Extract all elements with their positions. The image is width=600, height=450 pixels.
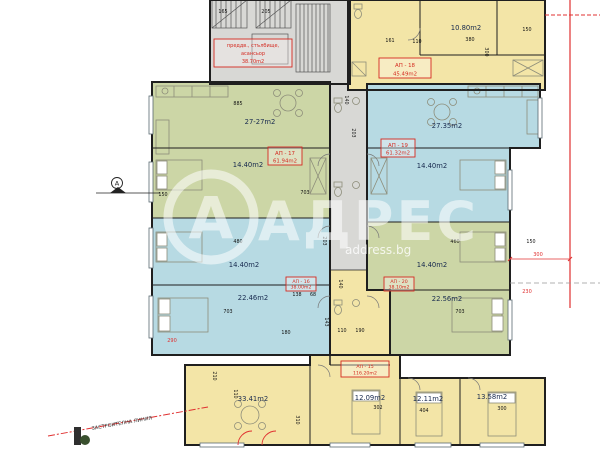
dim-label: 300 [483,47,489,56]
dim-label: 480 [233,239,242,245]
apartment-label: АП - 15116.20m2 [341,361,389,377]
red-dim-label: 300 [533,252,543,258]
apartment-label: АП - 1638.00m2 [286,277,316,291]
apartment-area: 116.20m2 [353,371,377,377]
core-label: преддв., стълбище, асансьор 38.70m2 [214,39,292,67]
dim-label: 380 [465,37,474,43]
apartment-area: 38.00m2 [291,285,312,291]
area-label: 12.09m2 [355,394,385,402]
dim-label: 140 [337,279,343,288]
dim-label: 110 [412,39,421,45]
area-label: 14.40m2 [417,261,447,269]
dim-label: 703 [300,190,309,196]
building-line-label: ЗАСТРОИТЕЛНА ЛИНИЯ [91,415,152,432]
area-label: 14.40m2 [233,161,263,169]
apartment-id: АП - 19 [388,143,409,149]
dim-label: 203 [321,236,327,245]
entrance-mark [74,427,81,445]
tree-mark [80,435,90,445]
apartment-area: 45.49m2 [393,72,417,78]
apartment-label: АП - 1961.32m2 [381,139,415,157]
dim-label: 190 [355,328,364,334]
core-label-line2: асансьор [241,51,265,57]
apartment-id: АП - 18 [395,63,416,69]
axis-letter: А [115,180,120,188]
apartment-label: АП - 1761.94m2 [268,147,302,165]
dim-label: 161 [385,38,394,44]
dim-label: 140 [343,95,349,104]
dim-label: 203 [350,128,356,137]
area-label: 14.40m2 [229,261,259,269]
apartment-id: АП - 16 [292,279,309,285]
apartment-id: АП - 17 [275,151,295,157]
dim-label: 150 [526,239,535,245]
area-label: 13.58m2 [477,393,507,401]
floor-plan-screenshot: ЗАСТРОИТЕЛНА ЛИНИЯ А преддв., стълбище, … [0,0,600,450]
dim-label: 210 [211,371,217,380]
dim-label: 110 [337,328,346,334]
apartment-id: АП - 15 [356,364,373,370]
red-dim-label: 290 [167,338,177,344]
core-label-line3: 38.70m2 [242,59,264,65]
area-label: 14.40m2 [417,162,447,170]
core-label-line1: преддв., стълбище, [227,43,280,49]
dim-label: 300 [497,406,506,412]
dim-label: 143 [323,317,329,326]
area-label: 10.80m2 [451,24,481,32]
apartment-id: АП - 20 [390,279,407,285]
dim-label: 138 [292,292,301,298]
dim-label: 150 [522,27,531,33]
dim-label: 885 [233,101,242,107]
apartment-area: 61.32m2 [386,151,410,157]
area-label: 12.11m2 [413,395,443,403]
area-label: 27-27m2 [245,118,276,126]
area-label: 27.35m2 [432,122,462,130]
dim-label: 460 [450,239,459,245]
dim-label: 180 [281,330,290,336]
floor-plan-svg: ЗАСТРОИТЕЛНА ЛИНИЯ А преддв., стълбище, … [0,0,600,450]
dim-label: 110 [232,389,238,398]
dim-label: 703 [223,309,232,315]
dim-label: 302 [373,405,382,411]
dim-label: 310 [294,415,300,424]
area-label: 22.56m2 [432,295,462,303]
dim-label: 165 [218,9,227,15]
apartment-18-rooms [348,0,545,90]
dim-label: 404 [419,408,428,414]
apartment-area: 61.94m2 [273,159,297,165]
red-dim-label: 230 [522,289,532,295]
area-label: 33.41m2 [238,395,268,403]
area-label: 22.46m2 [238,294,268,302]
dim-label: 68 [310,292,316,298]
apartment-label: АП - 1845.49m2 [379,58,431,78]
corridor [330,84,367,270]
dim-label: 703 [455,309,464,315]
dim-label: 150 [158,192,167,198]
apartment-area: 38.10m2 [389,285,410,291]
dim-label: 205 [261,9,270,15]
apartment-label: АП - 2038.10m2 [384,277,414,291]
